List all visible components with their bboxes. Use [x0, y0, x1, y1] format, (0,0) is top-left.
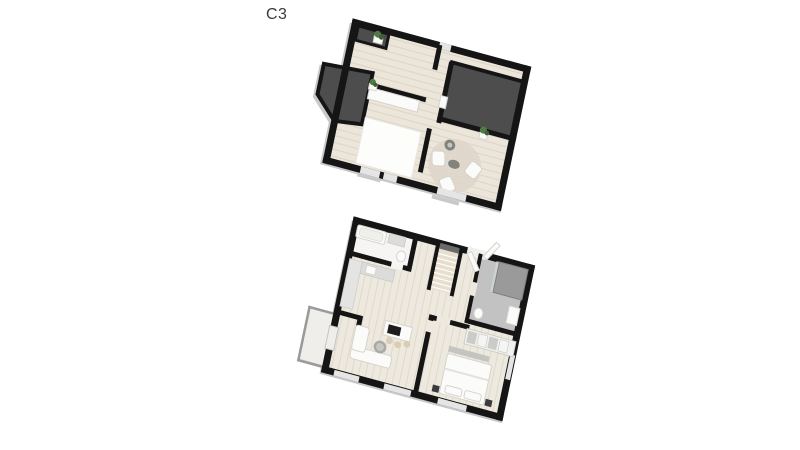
floor-plans-svg — [0, 0, 800, 450]
upper-floor-plan — [299, 12, 531, 216]
lounge-chair — [432, 151, 445, 166]
lower-floor-plan — [296, 198, 538, 424]
